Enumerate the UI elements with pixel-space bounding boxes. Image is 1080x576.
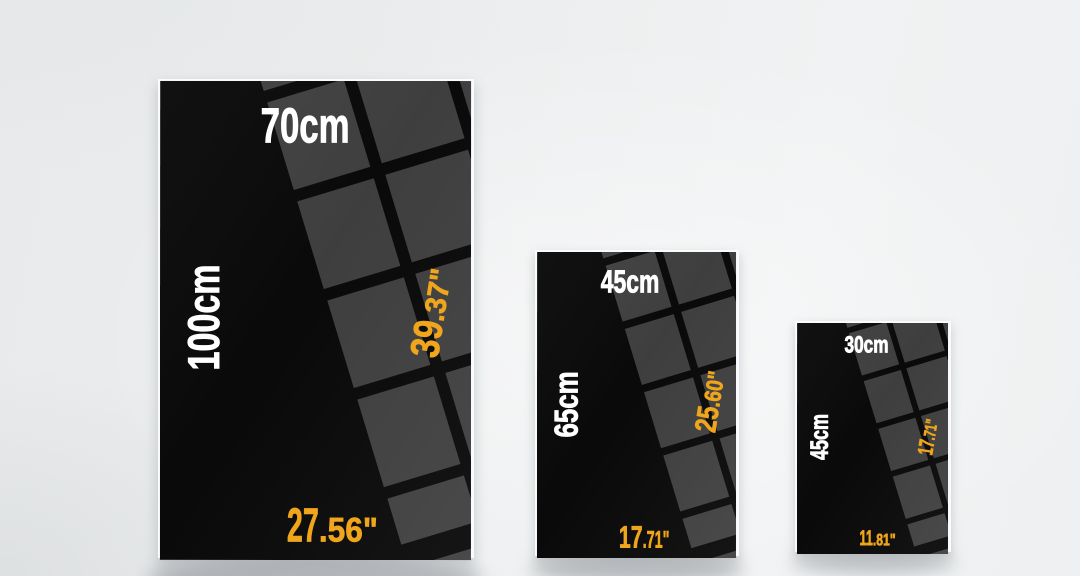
svg-text:65cm: 65cm (547, 371, 584, 437)
svg-text:70cm: 70cm (261, 98, 350, 153)
svg-text:30cm: 30cm (845, 331, 889, 357)
svg-text:11: 11 (860, 526, 873, 550)
svg-text:100cm: 100cm (180, 264, 229, 370)
svg-text:.56": .56" (319, 512, 378, 550)
svg-text:.71": .71" (921, 418, 942, 442)
svg-text:.71": .71" (643, 527, 670, 554)
svg-text:27: 27 (287, 499, 319, 552)
svg-text:45cm: 45cm (806, 414, 834, 460)
svg-text:17: 17 (619, 520, 643, 555)
svg-text:.81": .81" (873, 531, 896, 549)
svg-text:45cm: 45cm (601, 263, 660, 299)
